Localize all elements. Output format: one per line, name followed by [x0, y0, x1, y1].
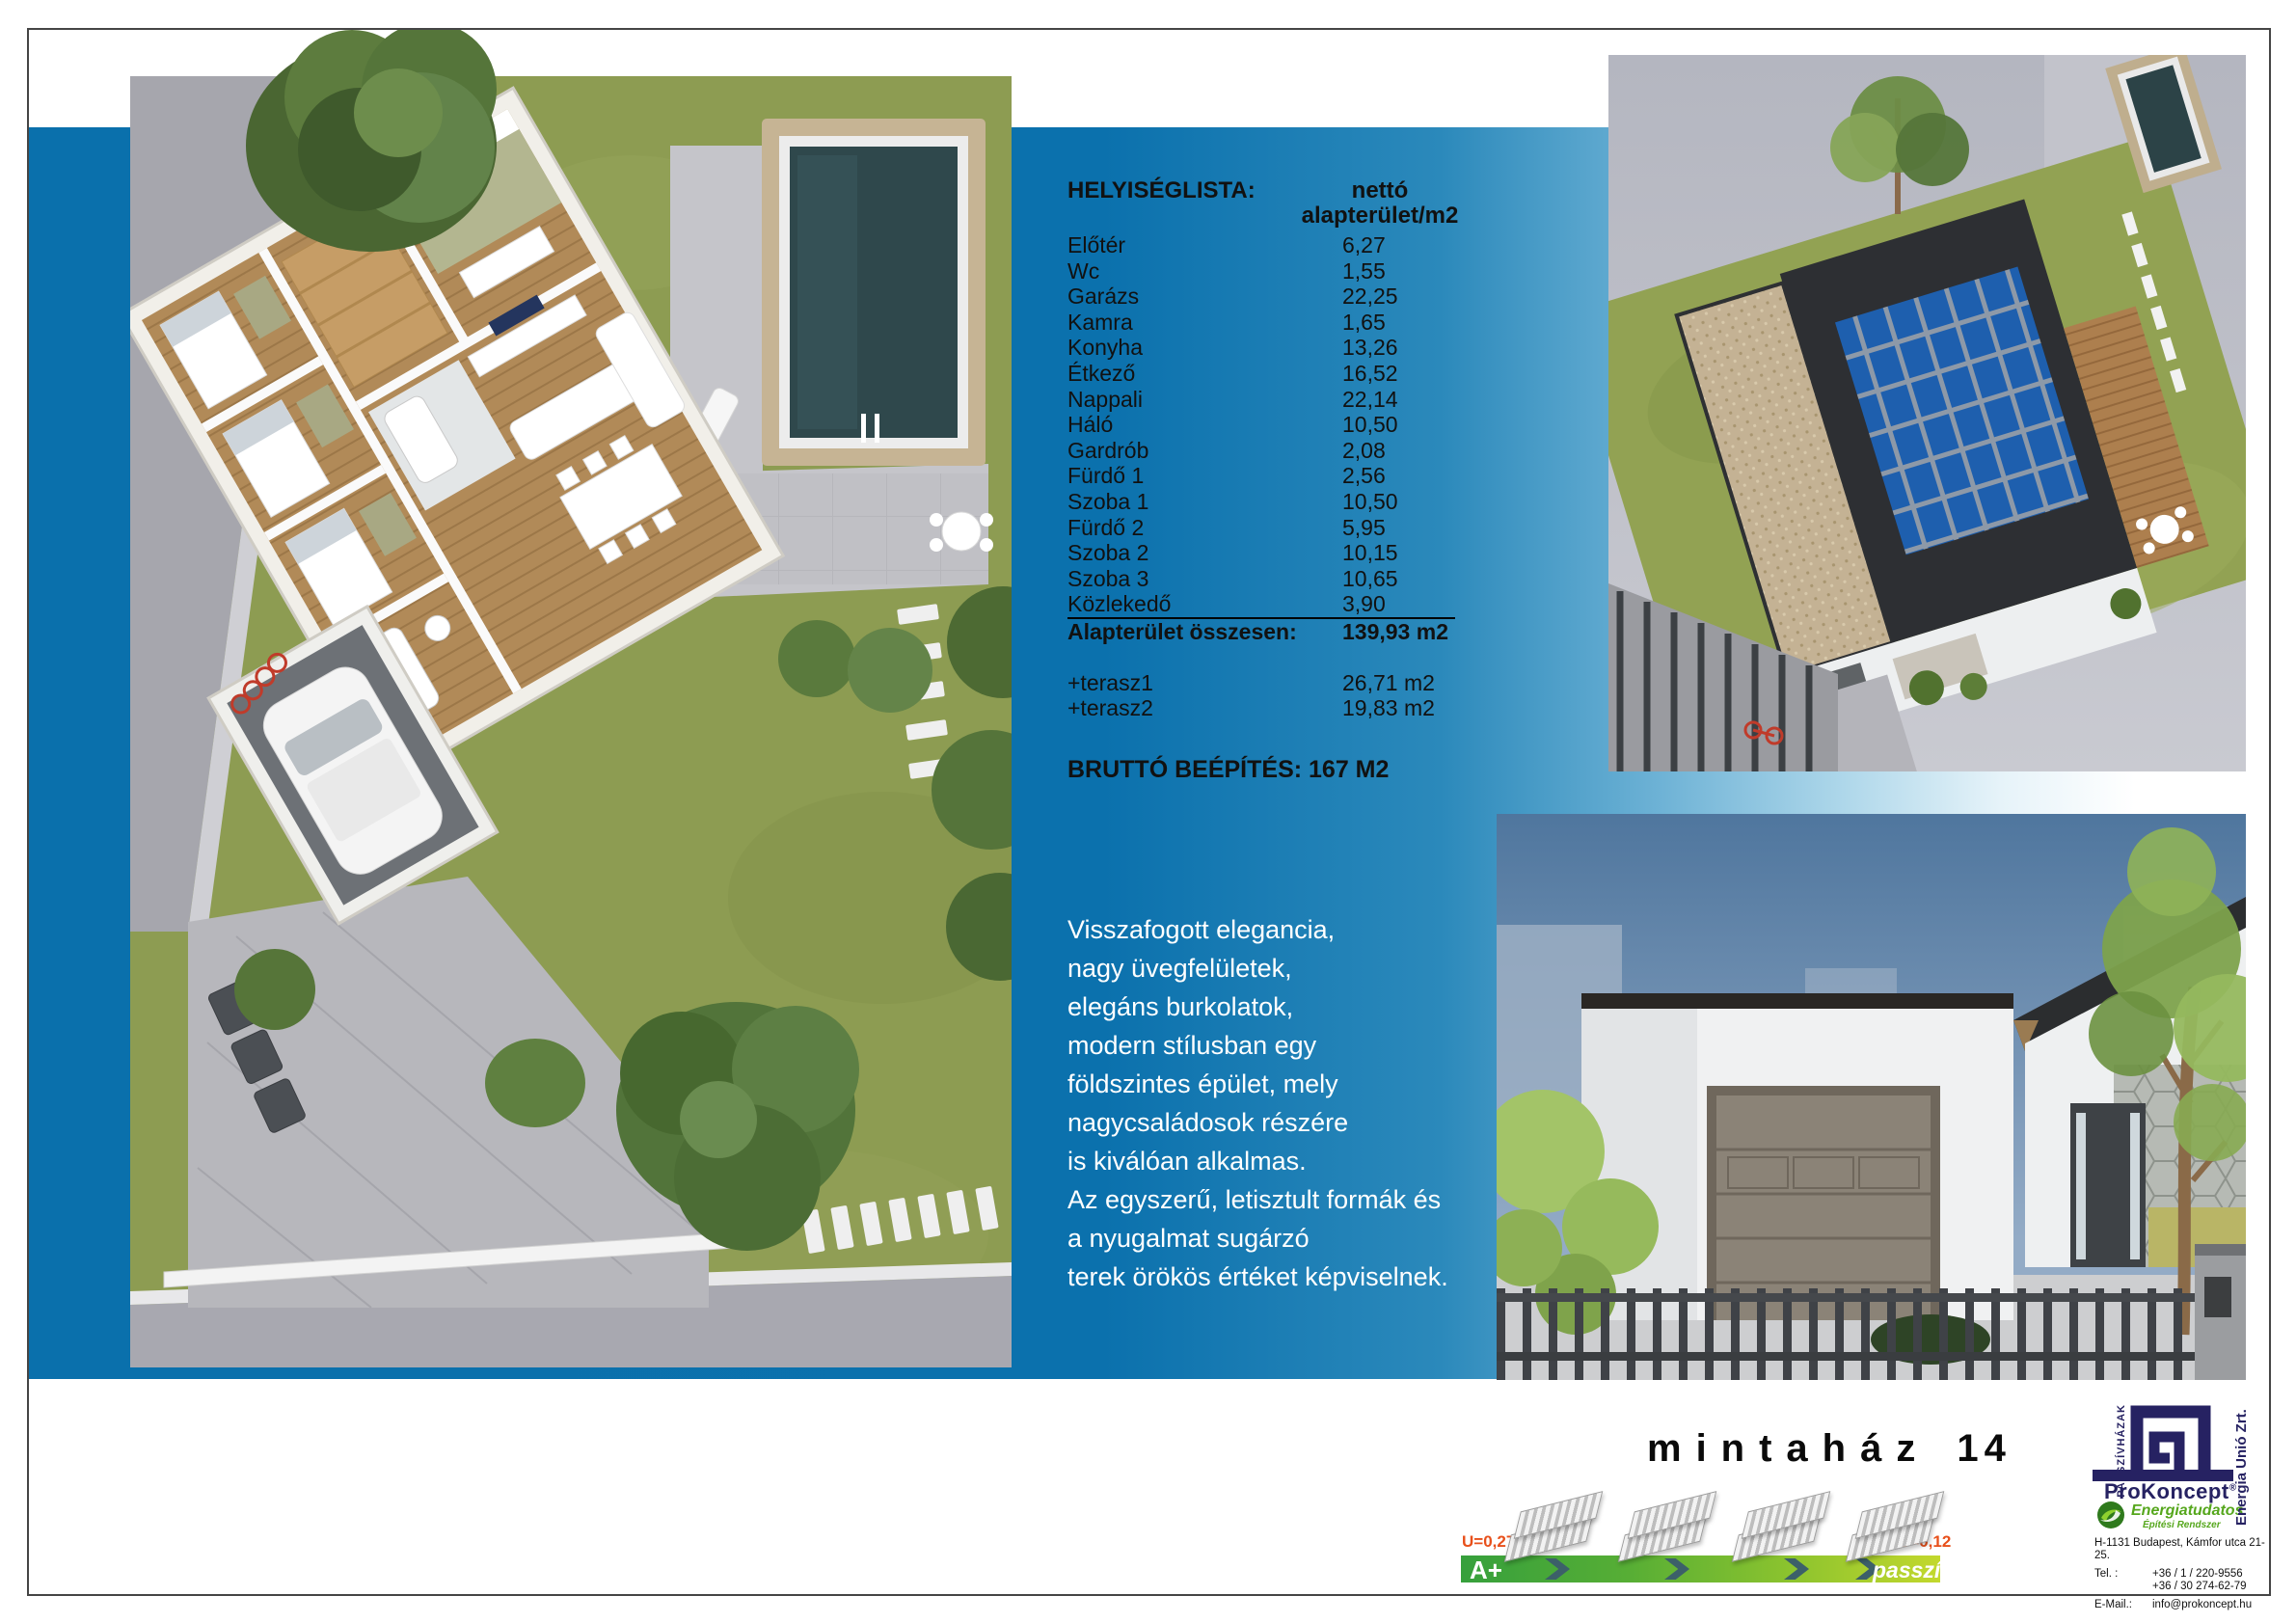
description-line: Az egyszerű, letisztult formák és [1067, 1180, 1550, 1219]
description-line: elegáns burkolatok, [1067, 987, 1550, 1026]
tel-label: Tel. : [2094, 1568, 2152, 1593]
tagline-energiatudatos: Energiatudatos [2131, 1502, 2243, 1520]
insulation-block-image [1504, 1497, 1605, 1560]
room-list-heading: HELYISÉGLISTA: [1067, 177, 1256, 203]
room-name: Nappali [1067, 387, 1342, 413]
room-name: Előtér [1067, 232, 1342, 258]
email-value: info@prokoncept.hu [2152, 1599, 2274, 1611]
room-row: Fürdő 12,56 [1067, 463, 1455, 489]
room-row: Közlekedő3,90 [1067, 591, 1455, 619]
front-render-image [1497, 814, 2246, 1380]
room-value: 5,95 [1342, 515, 1455, 541]
description-line: terek örökös értéket képviselnek. [1067, 1258, 1550, 1296]
room-value: 16,52 [1342, 361, 1455, 387]
room-value: 2,56 [1342, 463, 1455, 489]
total-label: Alapterület összesen: [1067, 619, 1342, 645]
room-list: HELYISÉGLISTA: nettó alapterület/m2 Előt… [1067, 178, 1455, 782]
room-name: Szoba 1 [1067, 489, 1342, 515]
address-line: H-1131 Budapest, Kámfor utca 21-25. [2094, 1537, 2274, 1562]
room-row: Fürdő 25,95 [1067, 515, 1455, 541]
room-value: 1,65 [1342, 310, 1455, 336]
room-row: Konyha13,26 [1067, 335, 1455, 361]
room-value: 2,08 [1342, 438, 1455, 464]
room-row: Étkező16,52 [1067, 361, 1455, 387]
room-name: Szoba 3 [1067, 566, 1342, 592]
vertical-energia-unio-label: Energia Unió Zrt. [2233, 1400, 2250, 1526]
brochure-page: HELYISÉGLISTA: nettó alapterület/m2 Előt… [0, 0, 2296, 1623]
description-line: a nyugalmat sugárzó [1067, 1219, 1550, 1258]
passive-label: passzív [1873, 1557, 1953, 1583]
energiatudatos-emblem-icon [2096, 1501, 2125, 1534]
room-name: Fürdő 1 [1067, 463, 1342, 489]
room-value: 22,25 [1342, 284, 1455, 310]
tel-numbers: +36 / 1 / 220-9556 +36 / 30 274-62-79 [2152, 1568, 2274, 1593]
room-name: Közlekedő [1067, 591, 1342, 617]
room-value: 6,27 [1342, 232, 1455, 258]
description-text: Visszafogott elegancia,nagy üvegfelülete… [1067, 910, 1550, 1296]
page-title: mintaház14 [1647, 1427, 2012, 1471]
room-value: 3,90 [1342, 591, 1455, 617]
room-row: +terasz126,71 m2 [1067, 670, 1455, 696]
room-value: 26,71 m2 [1342, 670, 1455, 696]
room-value: 1,55 [1342, 258, 1455, 284]
room-row: Szoba 210,15 [1067, 540, 1455, 566]
description-line: földszintes épület, mely [1067, 1065, 1550, 1103]
room-value: 10,15 [1342, 540, 1455, 566]
room-value: 19,83 m2 [1342, 695, 1455, 721]
room-row: Wc1,55 [1067, 258, 1455, 284]
room-value: 10,65 [1342, 566, 1455, 592]
room-rows: Előtér6,27Wc1,55Garázs22,25Kamra1,65Kony… [1067, 232, 1455, 619]
total-value: 139,93 m2 [1342, 619, 1448, 645]
room-list-header: HELYISÉGLISTA: nettó alapterület/m2 [1067, 178, 1455, 232]
description-line: is kiválóan alkalmas. [1067, 1142, 1550, 1180]
room-name: Fürdő 2 [1067, 515, 1342, 541]
room-row: Gardrób2,08 [1067, 438, 1455, 464]
room-name: Konyha [1067, 335, 1342, 361]
room-name: Kamra [1067, 310, 1342, 336]
room-value: 10,50 [1342, 412, 1455, 438]
room-row: Kamra1,65 [1067, 310, 1455, 336]
room-row: +terasz219,83 m2 [1067, 695, 1455, 721]
room-name: +terasz1 [1067, 670, 1342, 696]
tagline-epitesi-rendszer: Építési Rendszer [2143, 1520, 2221, 1530]
description-line: Visszafogott elegancia, [1067, 910, 1550, 949]
email-label: E-Mail.: [2094, 1599, 2152, 1611]
energy-rating-label: A+ [1470, 1555, 1502, 1585]
room-name: Háló [1067, 412, 1342, 438]
room-name: Étkező [1067, 361, 1342, 387]
insulation-block-image [1846, 1497, 1946, 1560]
floor-plan-image [130, 30, 1012, 1367]
room-value: 10,50 [1342, 489, 1455, 515]
terrace-rows: +terasz126,71 m2+terasz219,83 m2 [1067, 670, 1455, 721]
title-number: 14 [1957, 1427, 2012, 1470]
title-word: mintaház [1647, 1427, 1930, 1470]
room-list-column-header: nettó alapterület/m2 [1283, 178, 1476, 229]
room-list-total-row: Alapterület összesen: 139,93 m2 [1067, 619, 1455, 645]
room-name: Szoba 2 [1067, 540, 1342, 566]
room-row: Háló10,50 [1067, 412, 1455, 438]
room-value: 22,14 [1342, 387, 1455, 413]
front-render-graphic [1497, 814, 2246, 1380]
room-name: Garázs [1067, 284, 1342, 310]
description-line: nagycsaládosok részére [1067, 1103, 1550, 1142]
room-row: Nappali22,14 [1067, 387, 1455, 413]
prokoncept-maze-logo-icon [2091, 1400, 2235, 1488]
aerial-render-graphic [1608, 55, 2246, 771]
floor-plan-graphic [130, 30, 1012, 1367]
insulation-block-image [1732, 1497, 1832, 1560]
description-line: nagy üvegfelületek, [1067, 949, 1550, 987]
room-row: Előtér6,27 [1067, 232, 1455, 258]
contact-block: H-1131 Budapest, Kámfor utca 21-25. Tel.… [2094, 1537, 2274, 1611]
room-name: Wc [1067, 258, 1342, 284]
room-row: Garázs22,25 [1067, 284, 1455, 310]
aerial-render-image [1608, 55, 2246, 771]
room-row: Szoba 310,65 [1067, 566, 1455, 592]
room-row: Szoba 110,50 [1067, 489, 1455, 515]
room-name: Gardrób [1067, 438, 1342, 464]
description-line: modern stílusban egy [1067, 1026, 1550, 1065]
room-value: 13,26 [1342, 335, 1455, 361]
room-name: +terasz2 [1067, 695, 1342, 721]
insulation-block-image [1618, 1497, 1718, 1560]
gross-area-line: BRUTTÓ BEÉPÍTÉS: 167 M2 [1067, 757, 1455, 783]
